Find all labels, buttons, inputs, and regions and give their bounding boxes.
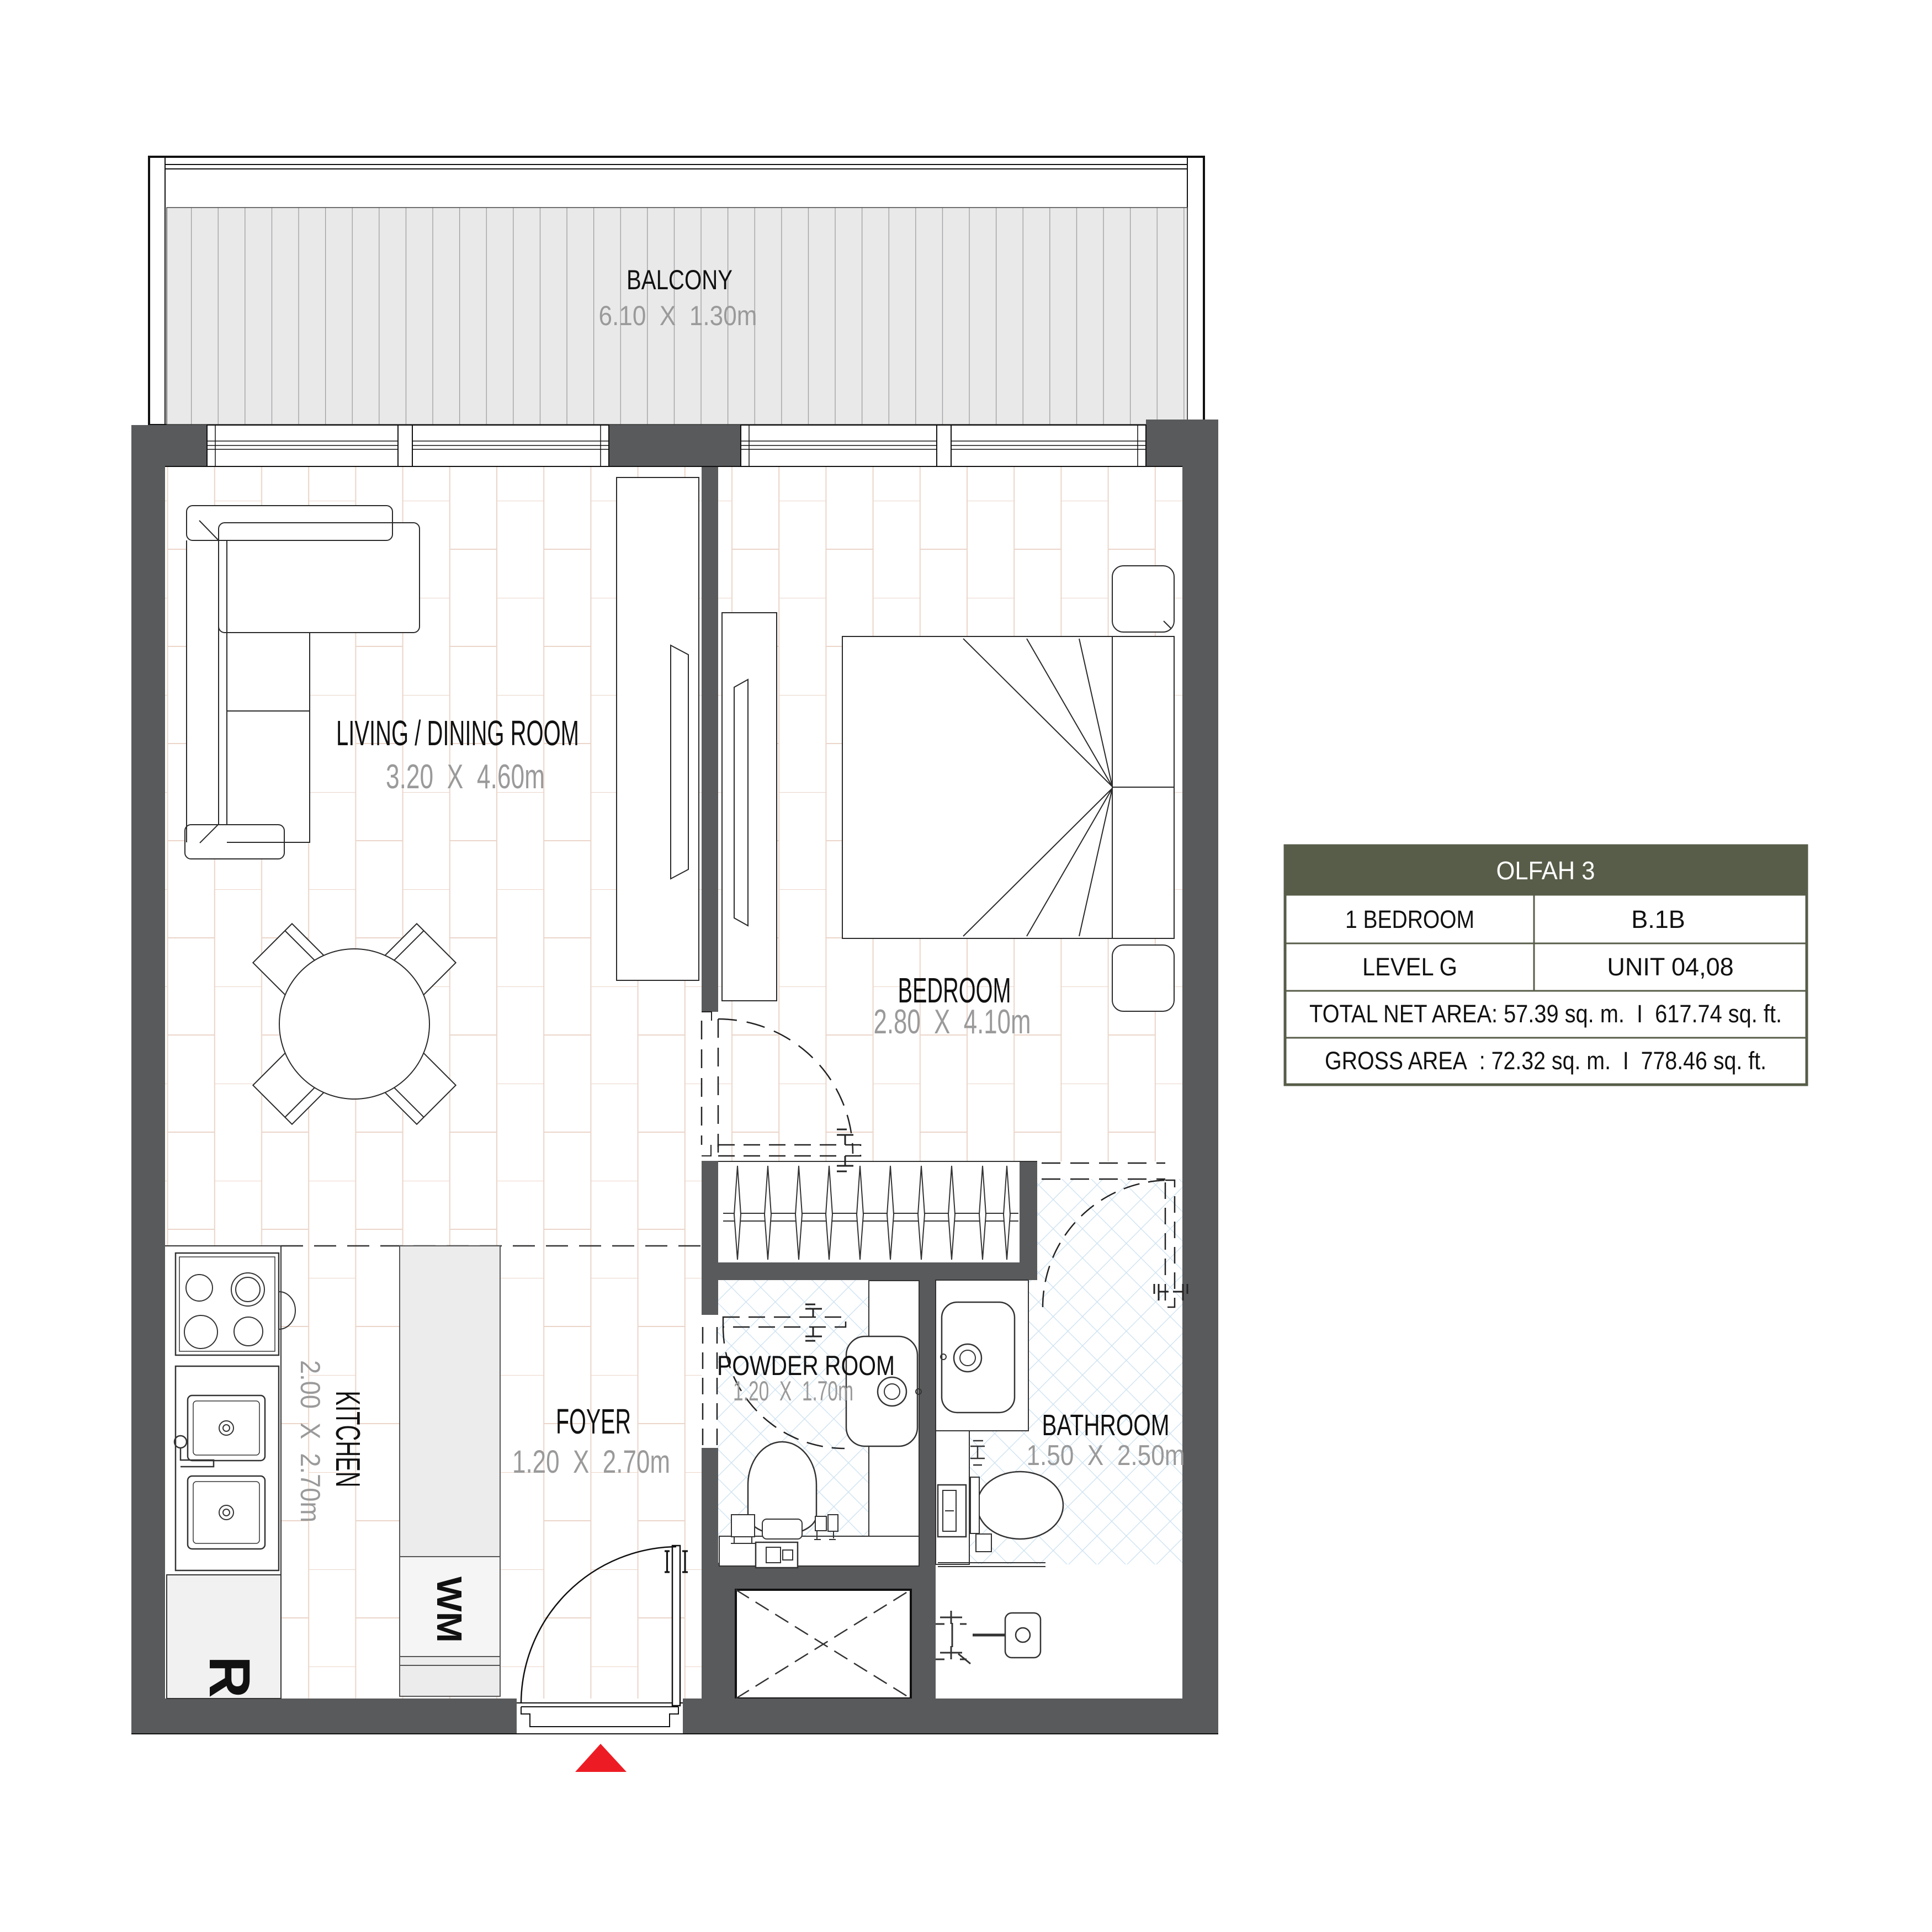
- svg-text:WM: WM: [429, 1577, 469, 1643]
- svg-text:B.1B: B.1B: [1631, 905, 1685, 933]
- svg-text:FOYER: FOYER: [556, 1402, 631, 1441]
- svg-text:UNIT 04,08: UNIT 04,08: [1607, 953, 1733, 981]
- svg-text:GROSS AREA : 72.32 sq. m. I: GROSS AREA : 72.32 sq. m. I 778.46 sq. f…: [1325, 1047, 1766, 1075]
- svg-text:1 BEDROOM: 1 BEDROOM: [1345, 905, 1474, 933]
- svg-text:2.80 X 4.10m: 2.80 X 4.10m: [874, 1003, 1031, 1041]
- svg-text:2.00 X 2.70m: 2.00 X 2.70m: [295, 1360, 326, 1522]
- svg-text:1.20 X 1.70m: 1.20 X 1.70m: [733, 1376, 853, 1406]
- svg-text:1.50 X 2.50m: 1.50 X 2.50m: [1027, 1440, 1185, 1472]
- svg-text:OLFAH 3: OLFAH 3: [1496, 856, 1595, 885]
- svg-text:6.10 X 1.30m: 6.10 X 1.30m: [599, 300, 757, 331]
- svg-text:BATHROOM: BATHROOM: [1042, 1409, 1170, 1442]
- svg-text:BALCONY: BALCONY: [627, 264, 733, 295]
- svg-text:KITCHEN: KITCHEN: [328, 1391, 367, 1488]
- svg-text:LIVING / DINING ROOM: LIVING / DINING ROOM: [336, 713, 579, 753]
- svg-text:TOTAL NET AREA: 57.39 sq. m.: TOTAL NET AREA: 57.39 sq. m. I 617.74 sq…: [1309, 1000, 1782, 1028]
- svg-text:1.20 X 2.70m: 1.20 X 2.70m: [512, 1444, 670, 1480]
- svg-text:3.20 X 4.60m: 3.20 X 4.60m: [386, 758, 545, 796]
- svg-text:LEVEL G: LEVEL G: [1362, 953, 1457, 981]
- svg-text:R: R: [197, 1656, 262, 1698]
